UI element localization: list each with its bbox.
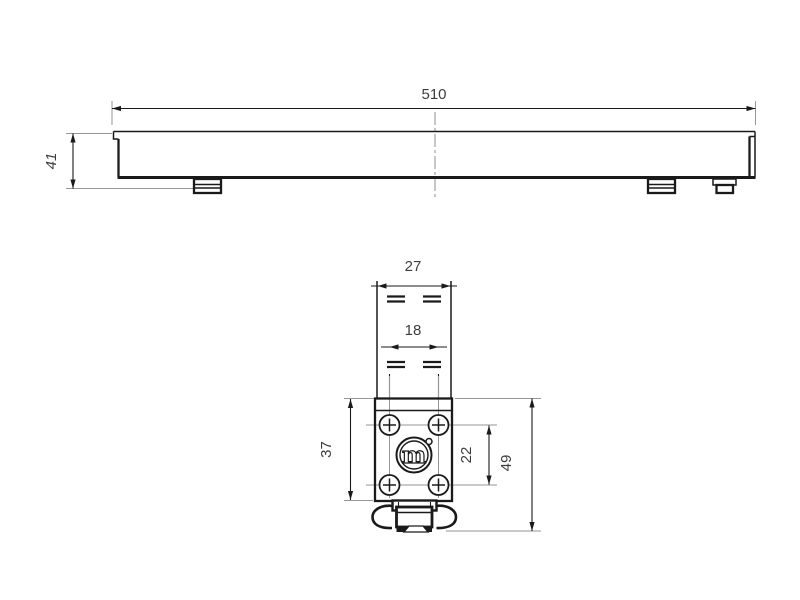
dim-label-length: 510 bbox=[421, 86, 446, 103]
arrowhead-left bbox=[112, 106, 121, 111]
dim-rail-width: 27 bbox=[371, 258, 457, 289]
screw-top-right bbox=[429, 415, 449, 435]
arrowhead-down bbox=[70, 180, 75, 189]
drawing-canvas: 510 41 bbox=[0, 0, 800, 600]
dim-total-height: 49 bbox=[446, 399, 541, 532]
dim-hole-spacing: 22 bbox=[458, 426, 492, 485]
arrowhead-left bbox=[390, 344, 399, 349]
dim-height: 41 bbox=[43, 134, 197, 189]
bar-left-lip bbox=[114, 132, 119, 140]
arrowhead-down bbox=[348, 491, 353, 500]
technical-drawing: 510 41 bbox=[0, 0, 800, 600]
dim-inner-width: 18 bbox=[381, 322, 447, 397]
screw-top-left bbox=[380, 415, 400, 435]
arrowhead-down bbox=[529, 522, 534, 531]
screw-bottom-right bbox=[429, 475, 449, 495]
brand-logo: m bbox=[397, 438, 433, 473]
arrowhead-right bbox=[442, 283, 451, 288]
arrowhead-left bbox=[378, 283, 387, 288]
clamp-base-notch bbox=[404, 526, 428, 532]
arrowhead-down bbox=[486, 476, 491, 485]
clamp-wing-left bbox=[373, 506, 394, 528]
leveler-body bbox=[717, 185, 734, 193]
arrowhead-up bbox=[529, 399, 534, 408]
bracket-view: 27 18 bbox=[318, 258, 541, 532]
foot-left bbox=[194, 179, 221, 193]
arrowhead-up bbox=[70, 134, 75, 143]
dim-label-hole-spacing: 22 bbox=[458, 447, 475, 464]
logo-letter: m bbox=[402, 442, 426, 469]
logo-dot bbox=[426, 439, 432, 445]
dim-label-total-height: 49 bbox=[498, 455, 515, 472]
dim-length: 510 bbox=[112, 86, 756, 125]
clamp-wing-right bbox=[436, 506, 457, 528]
foot-body bbox=[648, 179, 675, 193]
foot-body bbox=[194, 179, 221, 193]
arrowhead-up bbox=[486, 426, 491, 435]
rail bbox=[377, 281, 451, 398]
dim-plate-height: 37 bbox=[318, 399, 374, 501]
dim-label-plate-height: 37 bbox=[318, 441, 335, 458]
dim-label-rail-width: 27 bbox=[405, 258, 422, 275]
clamp-block bbox=[397, 507, 433, 527]
clamp bbox=[373, 501, 457, 533]
arrowhead-up bbox=[348, 399, 353, 408]
leveling-foot bbox=[713, 177, 736, 193]
dim-label-height: 41 bbox=[43, 153, 60, 170]
foot-right bbox=[648, 179, 675, 193]
arrowhead-right bbox=[747, 106, 756, 111]
dim-label-inner-width: 18 bbox=[405, 322, 422, 339]
arrowhead-right bbox=[430, 344, 439, 349]
screw-bottom-left bbox=[380, 475, 400, 495]
side-view: 510 41 bbox=[43, 86, 756, 197]
